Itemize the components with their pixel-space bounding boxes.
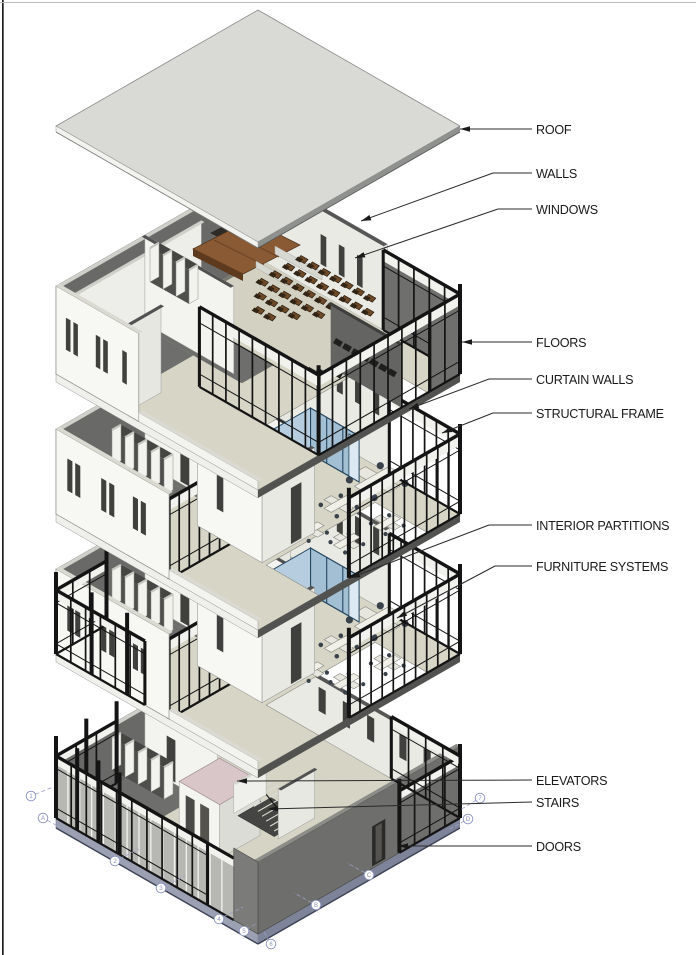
svg-text:CURTAIN WALLS: CURTAIN WALLS (536, 373, 633, 387)
svg-text:STAIRS: STAIRS (536, 796, 579, 810)
svg-text:WINDOWS: WINDOWS (536, 203, 598, 217)
svg-text:ELEVATORS: ELEVATORS (536, 774, 607, 788)
svg-text:B: B (314, 903, 318, 909)
svg-text:C: C (367, 873, 372, 879)
svg-text:WALLS: WALLS (536, 167, 577, 181)
svg-text:FLOORS: FLOORS (536, 336, 586, 350)
svg-text:INTERIOR PARTITIONS: INTERIOR PARTITIONS (536, 519, 669, 533)
svg-text:A: A (41, 816, 45, 822)
svg-text:FURNITURE SYSTEMS: FURNITURE SYSTEMS (536, 560, 668, 574)
svg-text:ROOF: ROOF (536, 123, 572, 137)
svg-text:DOORS: DOORS (536, 840, 581, 854)
svg-text:D: D (466, 817, 471, 823)
svg-text:STRUCTURAL FRAME: STRUCTURAL FRAME (536, 407, 664, 421)
